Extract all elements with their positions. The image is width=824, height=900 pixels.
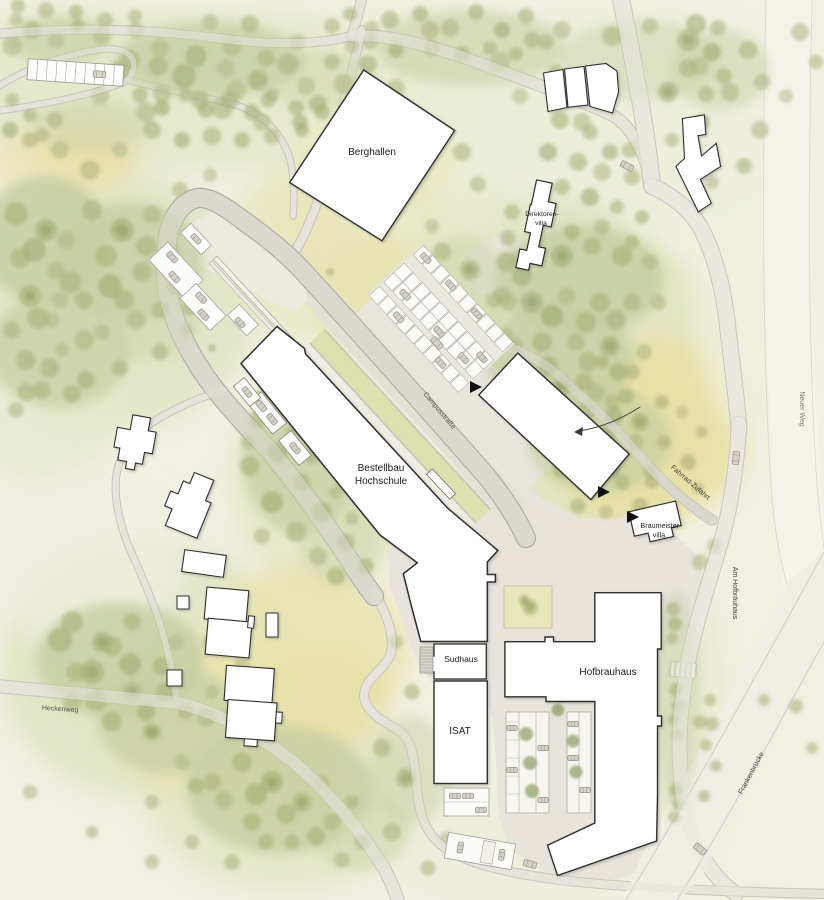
- svg-text:Braumeister-: Braumeister-: [640, 521, 682, 530]
- svg-text:Berghallen: Berghallen: [348, 147, 396, 158]
- svg-text:ISAT: ISAT: [449, 726, 470, 737]
- svg-text:villa: villa: [535, 220, 547, 227]
- svg-text:Hofbrauhaus: Hofbrauhaus: [579, 667, 636, 678]
- svg-text:Direktoren-: Direktoren-: [525, 211, 559, 218]
- svg-text:villa: villa: [653, 531, 665, 540]
- svg-text:Neuer Weg: Neuer Weg: [798, 391, 805, 426]
- svg-text:Hochschule: Hochschule: [355, 476, 408, 487]
- svg-text:Bestellbau: Bestellbau: [358, 463, 405, 474]
- svg-text:Am Hofbräuhaus: Am Hofbräuhaus: [731, 567, 738, 620]
- svg-text:Sudhaus: Sudhaus: [444, 654, 478, 664]
